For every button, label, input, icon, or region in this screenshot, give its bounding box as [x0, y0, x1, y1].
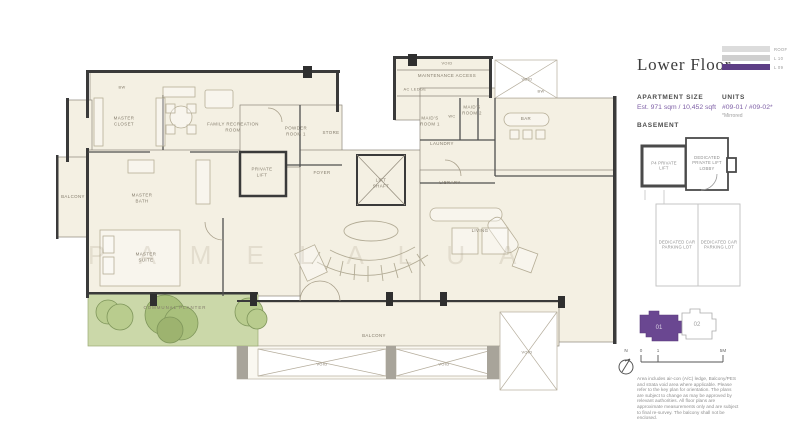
units-note: *Mirrored [722, 113, 743, 119]
room-label-master-suite: MASTER SUITE [131, 251, 161, 262]
room-label-void-top: VOID [427, 60, 467, 65]
north-compass-icon [619, 359, 633, 374]
units-value: #09-01 / #09-02* [722, 104, 773, 111]
level-row-roof: ROOF [722, 46, 787, 52]
room-label-master-bath: MASTER BATH [127, 192, 157, 203]
key-plan [640, 309, 716, 341]
room-label-master-closet: MASTER CLOSET [106, 115, 142, 126]
level-row-l10: L 10 [722, 55, 787, 61]
basement-label-parking-2: DEDICATED CAR PARKING LOT [700, 240, 738, 251]
basement-label-lift-lobby: DEDICATED PRIVATE LIFT LOBBY [690, 155, 724, 171]
room-label-living: LIVING [460, 228, 500, 234]
room-label-foyer: FOYER [302, 170, 342, 176]
room-label-wc: WC [448, 113, 455, 118]
scale-bar [641, 355, 723, 362]
scale-tick-0: 0 [640, 348, 643, 353]
level-bar-active [722, 64, 770, 70]
room-label-maids-room-1: MAID'S ROOM 1 [416, 115, 444, 126]
room-label-family-recreation: FAMILY RECREATION ROOM [207, 121, 259, 132]
room-label-communal-planter: COMMUNAL PLANTER [127, 305, 223, 311]
room-label-balcony-bottom: BALCONY [349, 333, 399, 339]
room-label-bw-right: BW [537, 88, 544, 93]
room-label-store: STORE [316, 130, 346, 136]
level-bar [722, 46, 770, 52]
key-plan-unit-02-label: 02 [694, 322, 701, 328]
apartment-size-header: APARTMENT SIZE [637, 94, 703, 101]
basement-label-parking-1: DEDICATED CAR PARKING LOT [658, 240, 696, 251]
basement-header: BASEMENT [637, 122, 679, 129]
room-label-bar: BAR [521, 116, 531, 122]
room-label-void-bottom-right: VOID [438, 361, 449, 366]
room-label-balcony-left: BALCONY [58, 194, 88, 200]
level-bar [722, 55, 770, 61]
room-label-private-lift: PRIVATE LIFT [247, 166, 277, 177]
scale-tick-1: 1 [657, 348, 660, 353]
room-label-ac-ledge: AC LEDGE [395, 86, 435, 91]
level-indicator: ROOF L 10 L 09 [722, 46, 787, 73]
compass-n-label: N [624, 348, 627, 353]
room-label-void-right: VOID [521, 349, 532, 354]
room-label-maintenance-access: MAINTENANCE ACCESS [401, 73, 493, 79]
room-label-maids-room-2: MAID'S ROOM 2 [458, 104, 486, 115]
room-label-powder-room: POWDER ROOM 1 [280, 125, 312, 136]
floorplan-page: P A M E L A L U A BW MASTER CLOSET FAMIL… [0, 0, 800, 430]
page-title: Lower Floor [637, 55, 731, 75]
level-row-l09-active: L 09 [722, 64, 787, 70]
basement-label-private-lift: P4 PRIVATE LIFT [651, 161, 677, 172]
room-label-library: LIBRARY [430, 180, 470, 186]
key-plan-unit-01-label: 01 [656, 325, 663, 331]
room-label-void-bottom-left: VOID [316, 361, 327, 366]
room-label-lift-shaft: LIFT SHAFT [369, 177, 393, 188]
room-label-laundry: LAUNDRY [422, 141, 462, 147]
units-header: UNITS [722, 94, 745, 101]
room-label-void-top-right: VOID [521, 76, 532, 81]
scale-tick-5m: 5M [720, 348, 726, 353]
disclaimer-text: Area includes air-con (A/C) ledge, Balco… [637, 376, 739, 421]
room-label-bw-left: BW [118, 84, 125, 89]
apartment-size-value: Est. 971 sqm / 10,452 sqft [637, 104, 716, 111]
